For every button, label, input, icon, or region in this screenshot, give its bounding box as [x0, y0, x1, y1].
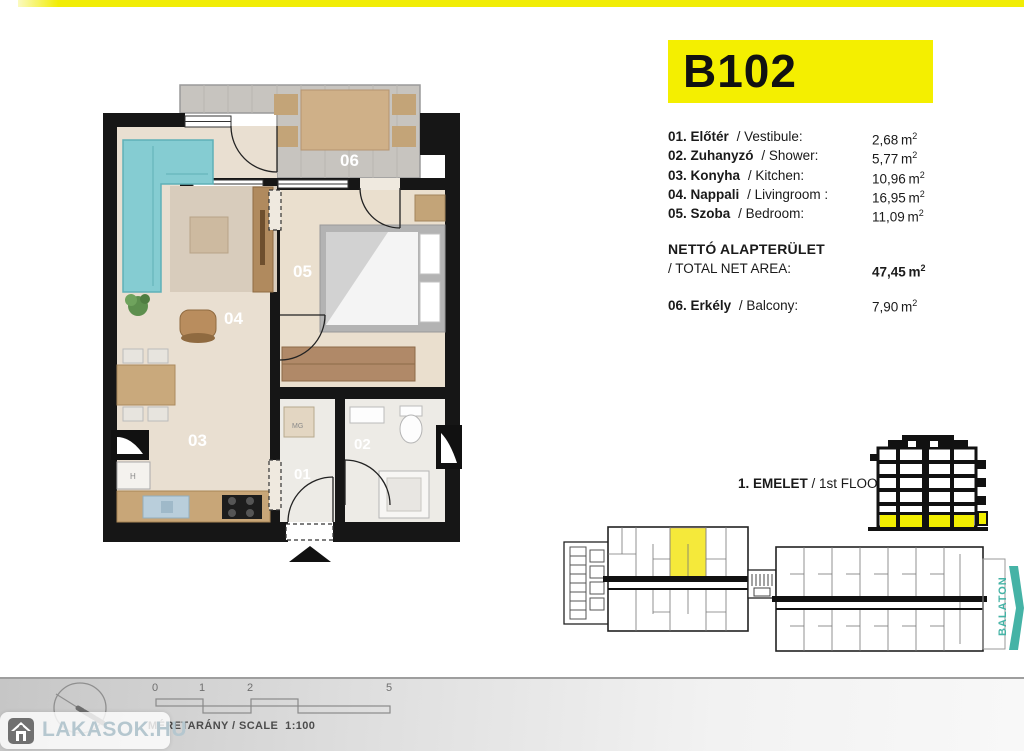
balcony-area-row: 06. Erkély / Balcony: 7,90 m2	[668, 298, 968, 313]
floor-indicator-label: 1. EMELET / 1st FLOOR	[738, 476, 887, 491]
scale-bar-ticks: 0 1 2 5	[0, 682, 420, 696]
svg-text:H: H	[130, 472, 136, 481]
total-net-area: NETTÓ ALAPTERÜLET / TOTAL NET AREA: 47,4…	[668, 240, 968, 278]
label-room-01: 01	[294, 466, 311, 483]
room-row-04: 04. Nappali / Livingroom : 16,95 m2	[668, 185, 968, 204]
top-accent-bar	[18, 0, 1024, 7]
watermark-text: LAKASOK.HU	[42, 718, 187, 742]
label-room-03: 03	[188, 431, 207, 450]
label-room-04: 04	[224, 309, 243, 328]
site-overview-plan	[556, 514, 1011, 666]
total-label-hu: NETTÓ ALAPTERÜLET	[668, 240, 968, 259]
apartment-floorplan: H	[98, 80, 473, 565]
label-room-06: 06	[340, 151, 359, 170]
label-washing-machine: MG	[292, 423, 303, 430]
watermark-badge: LAKASOK.HU	[0, 712, 170, 749]
room-area: 11,09 m2	[872, 204, 924, 227]
label-room-02: 02	[354, 436, 371, 453]
room-row-02: 02. Zuhanyzó / Shower: 5,77 m2	[668, 146, 968, 165]
room-list: 01. Előtér / Vestibule: 2,68 m2 02. Zuha…	[668, 127, 968, 223]
house-icon	[8, 718, 34, 744]
unit-id-box: B102	[668, 40, 933, 103]
unit-id: B102	[683, 44, 797, 98]
room-row-01: 01. Előtér / Vestibule: 2,68 m2	[668, 127, 968, 146]
label-room-05: 05	[293, 262, 312, 281]
scale-bar	[148, 697, 398, 717]
balaton-arrow-icon	[1009, 566, 1024, 650]
room-row-03: 03. Konyha / Kitchen: 10,96 m2	[668, 166, 968, 185]
room-area: 7,90 m2	[872, 298, 917, 315]
total-label-en: / TOTAL NET AREA:	[668, 261, 791, 276]
entrance-arrow-icon	[289, 546, 331, 562]
floorplan-sheet: H	[0, 0, 1024, 751]
room-row-05: 05. Szoba / Bedroom: 11,09 m2	[668, 204, 968, 223]
total-area-value: 47,45 m2	[872, 259, 926, 282]
